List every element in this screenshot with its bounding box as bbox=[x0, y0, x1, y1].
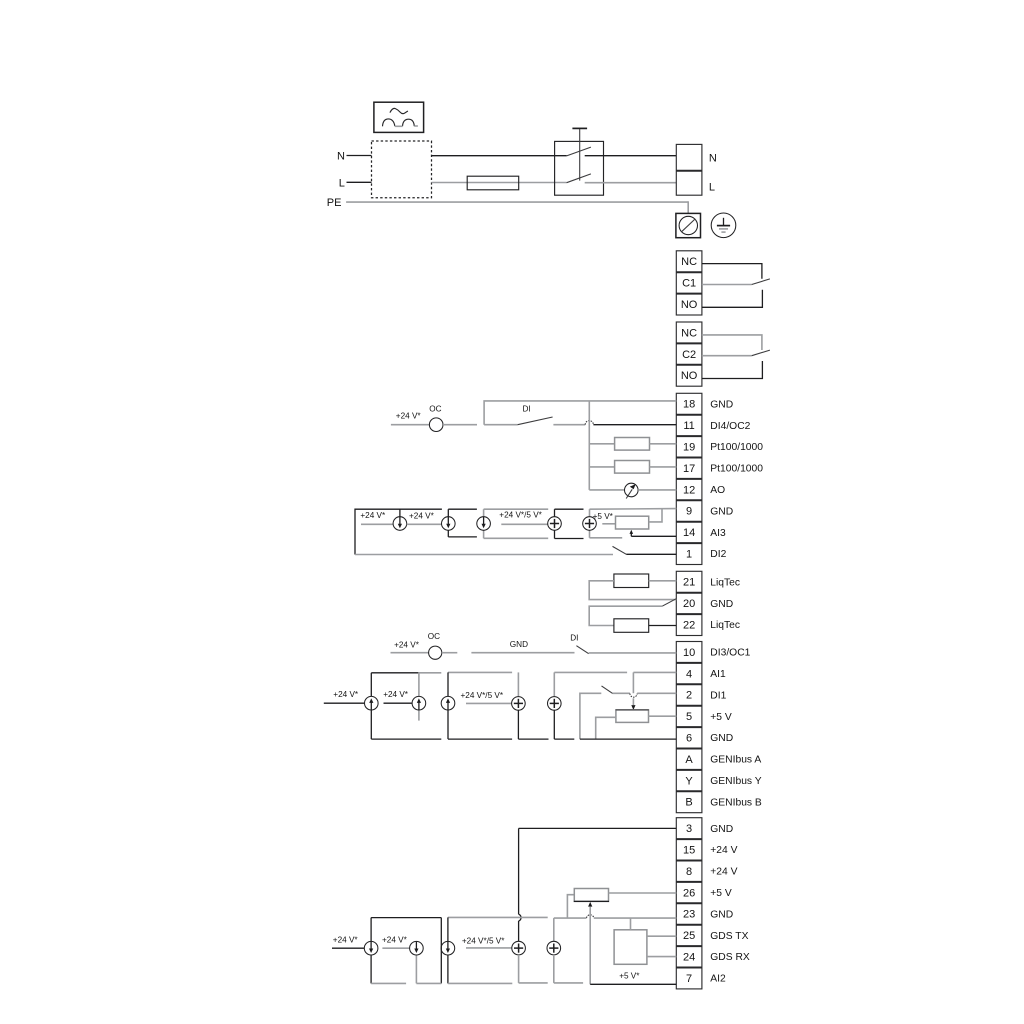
svg-text:11: 11 bbox=[683, 420, 694, 432]
svg-text:PE: PE bbox=[327, 197, 342, 209]
svg-text:L: L bbox=[339, 177, 345, 189]
svg-text:DI: DI bbox=[570, 633, 578, 642]
svg-text:1: 1 bbox=[686, 549, 692, 561]
svg-text:NO: NO bbox=[681, 299, 698, 311]
svg-text:GENIbus A: GENIbus A bbox=[710, 755, 761, 766]
svg-text:GND: GND bbox=[710, 824, 733, 835]
svg-text:DI3/OC1: DI3/OC1 bbox=[710, 648, 750, 659]
svg-text:OC: OC bbox=[429, 404, 441, 413]
svg-text:25: 25 bbox=[683, 930, 695, 942]
svg-text:Pt100/1000: Pt100/1000 bbox=[710, 442, 763, 453]
svg-text:+24 V*: +24 V* bbox=[409, 511, 435, 520]
svg-text:+5 V: +5 V bbox=[710, 712, 732, 723]
svg-text:+24 V*: +24 V* bbox=[394, 641, 420, 650]
svg-text:2: 2 bbox=[686, 690, 692, 702]
svg-text:C1: C1 bbox=[682, 278, 696, 290]
svg-text:17: 17 bbox=[683, 463, 695, 475]
svg-text:8: 8 bbox=[686, 866, 692, 878]
svg-text:GENIbus Y: GENIbus Y bbox=[710, 776, 761, 787]
svg-text:L: L bbox=[709, 182, 715, 194]
svg-text:+24 V*/5 V*: +24 V*/5 V* bbox=[462, 937, 505, 946]
svg-text:7: 7 bbox=[686, 973, 692, 985]
svg-text:AI3: AI3 bbox=[710, 528, 726, 539]
svg-text:24: 24 bbox=[683, 952, 695, 964]
svg-text:26: 26 bbox=[683, 887, 695, 899]
svg-text:+24 V*: +24 V* bbox=[333, 690, 359, 699]
svg-text:N: N bbox=[709, 153, 717, 165]
svg-text:GENIbus B: GENIbus B bbox=[710, 797, 762, 808]
svg-text:+24 V*: +24 V* bbox=[383, 690, 409, 699]
svg-text:DI4/OC2: DI4/OC2 bbox=[710, 421, 750, 432]
svg-text:+5 V: +5 V bbox=[710, 888, 732, 899]
svg-text:15: 15 bbox=[683, 845, 695, 857]
svg-text:NC: NC bbox=[681, 256, 697, 268]
svg-text:+24 V*/5 V*: +24 V*/5 V* bbox=[499, 511, 542, 520]
svg-text:Y: Y bbox=[685, 775, 693, 787]
svg-text:19: 19 bbox=[683, 442, 695, 454]
svg-text:GND: GND bbox=[510, 640, 528, 649]
svg-text:GND: GND bbox=[710, 599, 733, 610]
svg-text:Pt100/1000: Pt100/1000 bbox=[710, 464, 763, 475]
svg-text:12: 12 bbox=[683, 484, 695, 496]
svg-text:B: B bbox=[685, 797, 692, 809]
svg-text:+24 V*: +24 V* bbox=[360, 511, 386, 520]
svg-text:LiqTec: LiqTec bbox=[710, 620, 740, 631]
svg-text:GND: GND bbox=[710, 399, 733, 410]
svg-text:GND: GND bbox=[710, 733, 733, 744]
svg-text:22: 22 bbox=[683, 620, 695, 632]
svg-text:20: 20 bbox=[683, 598, 695, 610]
svg-text:C2: C2 bbox=[682, 349, 696, 361]
svg-text:AI2: AI2 bbox=[710, 974, 726, 985]
svg-text:9: 9 bbox=[686, 506, 692, 518]
svg-text:3: 3 bbox=[686, 823, 692, 835]
svg-text:LiqTec: LiqTec bbox=[710, 577, 740, 588]
svg-text:DI2: DI2 bbox=[710, 549, 726, 560]
svg-text:DI: DI bbox=[523, 405, 531, 414]
svg-text:GND: GND bbox=[710, 506, 733, 517]
svg-text:+24 V*/5 V*: +24 V*/5 V* bbox=[461, 691, 504, 700]
svg-text:AI1: AI1 bbox=[710, 669, 726, 680]
svg-text:N: N bbox=[337, 151, 345, 163]
svg-text:GND: GND bbox=[710, 909, 733, 920]
svg-text:NC: NC bbox=[681, 327, 697, 339]
svg-text:+24 V*: +24 V* bbox=[396, 412, 422, 421]
svg-text:4: 4 bbox=[686, 668, 692, 680]
svg-text:+24 V*: +24 V* bbox=[333, 935, 359, 944]
svg-text:10: 10 bbox=[683, 647, 695, 659]
svg-text:+5 V*: +5 V* bbox=[619, 972, 640, 981]
svg-text:GDS TX: GDS TX bbox=[710, 931, 748, 942]
svg-text:18: 18 bbox=[683, 399, 695, 411]
svg-text:14: 14 bbox=[683, 527, 695, 539]
svg-text:+24 V: +24 V bbox=[710, 867, 737, 878]
svg-text:23: 23 bbox=[683, 909, 695, 921]
svg-text:+24 V*: +24 V* bbox=[382, 935, 408, 944]
svg-text:GDS RX: GDS RX bbox=[710, 952, 750, 963]
svg-text:AO: AO bbox=[710, 485, 725, 496]
svg-text:NO: NO bbox=[681, 370, 698, 382]
svg-text:21: 21 bbox=[683, 577, 695, 589]
svg-text:+24 V: +24 V bbox=[710, 845, 737, 856]
svg-text:DI1: DI1 bbox=[710, 690, 726, 701]
svg-text:OC: OC bbox=[428, 632, 440, 641]
svg-text:A: A bbox=[685, 754, 693, 766]
svg-text:6: 6 bbox=[686, 733, 692, 745]
svg-text:5: 5 bbox=[686, 711, 692, 723]
